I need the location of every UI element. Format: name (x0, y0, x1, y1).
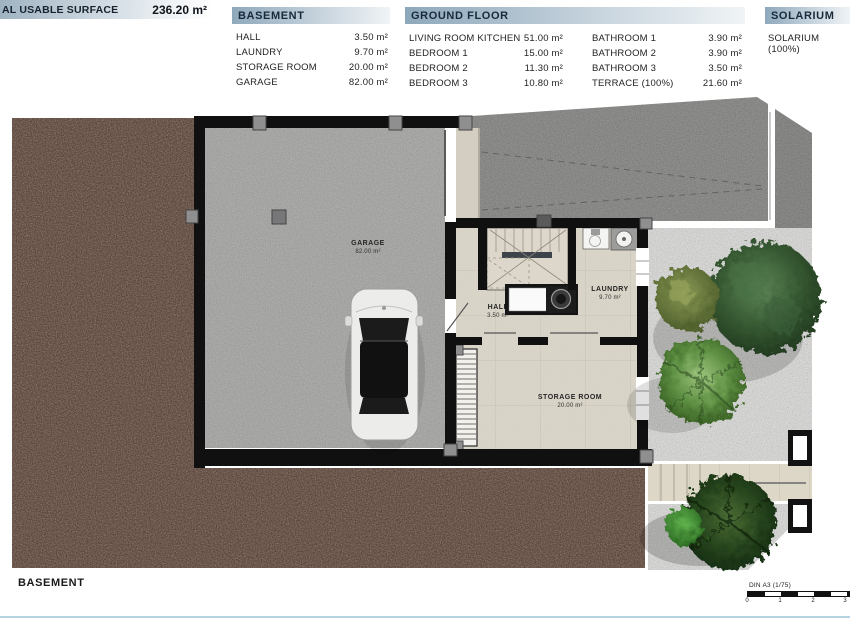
room-label-garage: GARAGE (351, 240, 385, 247)
table-row: STORAGE ROOM20.00 m² (236, 62, 388, 73)
tree-large (709, 242, 821, 354)
table-row: TERRACE (100%)21.60 m² (592, 78, 742, 89)
driveway (472, 97, 812, 228)
footer-divider-line (0, 616, 850, 618)
table-row: LIVING ROOM KITCHEN51.00 m² (409, 33, 563, 44)
room-label-hall: HALL (488, 304, 509, 311)
solarium-table-title: SOLARIUM (765, 7, 850, 24)
usable-surface-value: 236.20 m² (152, 3, 207, 17)
staircase (487, 228, 568, 290)
table-row: BATHROOM 23.90 m² (592, 48, 742, 59)
car-mirror (416, 316, 423, 326)
room-area-storage: 20.00 m² (557, 403, 582, 409)
usable-surface-label: AL USABLE SURFACE (2, 4, 118, 16)
car-rear-window (359, 398, 409, 414)
car-windshield (359, 318, 409, 341)
room-label-storage: STORAGE ROOM (538, 394, 602, 401)
table-row: SOLARIUM (100%) (768, 33, 850, 55)
entry-strip (456, 128, 480, 220)
hall-counter (505, 284, 578, 315)
car-top-view (345, 289, 425, 454)
table-row: LAUNDRY9.70 m² (236, 47, 388, 58)
scale-tick: 2 (808, 598, 818, 604)
car-roof (360, 341, 408, 398)
table-row: GARAGE82.00 m² (236, 77, 388, 88)
table-row: HALL3.50 m² (236, 32, 388, 43)
tree-olive (655, 267, 719, 331)
scale-label: DIN A3 (1/75) (749, 582, 791, 589)
room-area-laundry: 9.70 m² (599, 295, 621, 301)
table-row: BEDROOM 310.80 m² (409, 78, 563, 89)
table-row: BATHROOM 33.50 m² (592, 63, 742, 74)
table-row: BATHROOM 13.90 m² (592, 33, 742, 44)
room-area-garage: 82.00 m² (355, 249, 380, 255)
table-row: BEDROOM 115.00 m² (409, 48, 563, 59)
scale-tick: 1 (775, 598, 785, 604)
room-label-laundry: LAUNDRY (591, 286, 628, 293)
basement-table-title: BASEMENT (232, 7, 390, 24)
garden-bush (666, 508, 704, 546)
scale-tick: 0 (742, 598, 752, 604)
floor-plan: GARAGE 82.00 m² HALL 3.50 m² LAUNDRY 9.7… (0, 0, 850, 620)
plan-caption: BASEMENT (18, 577, 85, 589)
car-mirror (345, 316, 352, 326)
table-row: BEDROOM 211.30 m² (409, 63, 563, 74)
ground-floor-table-title: GROUND FLOOR (405, 7, 745, 24)
page: GARAGE 82.00 m² HALL 3.50 m² LAUNDRY 9.7… (0, 0, 850, 620)
scale-bar (747, 591, 850, 597)
scale-tick: 3 (840, 598, 850, 604)
summary-row-usable: AL USABLE SURFACE 236.20 m² (0, 0, 212, 19)
room-area-hall: 3.50 m² (487, 313, 509, 319)
